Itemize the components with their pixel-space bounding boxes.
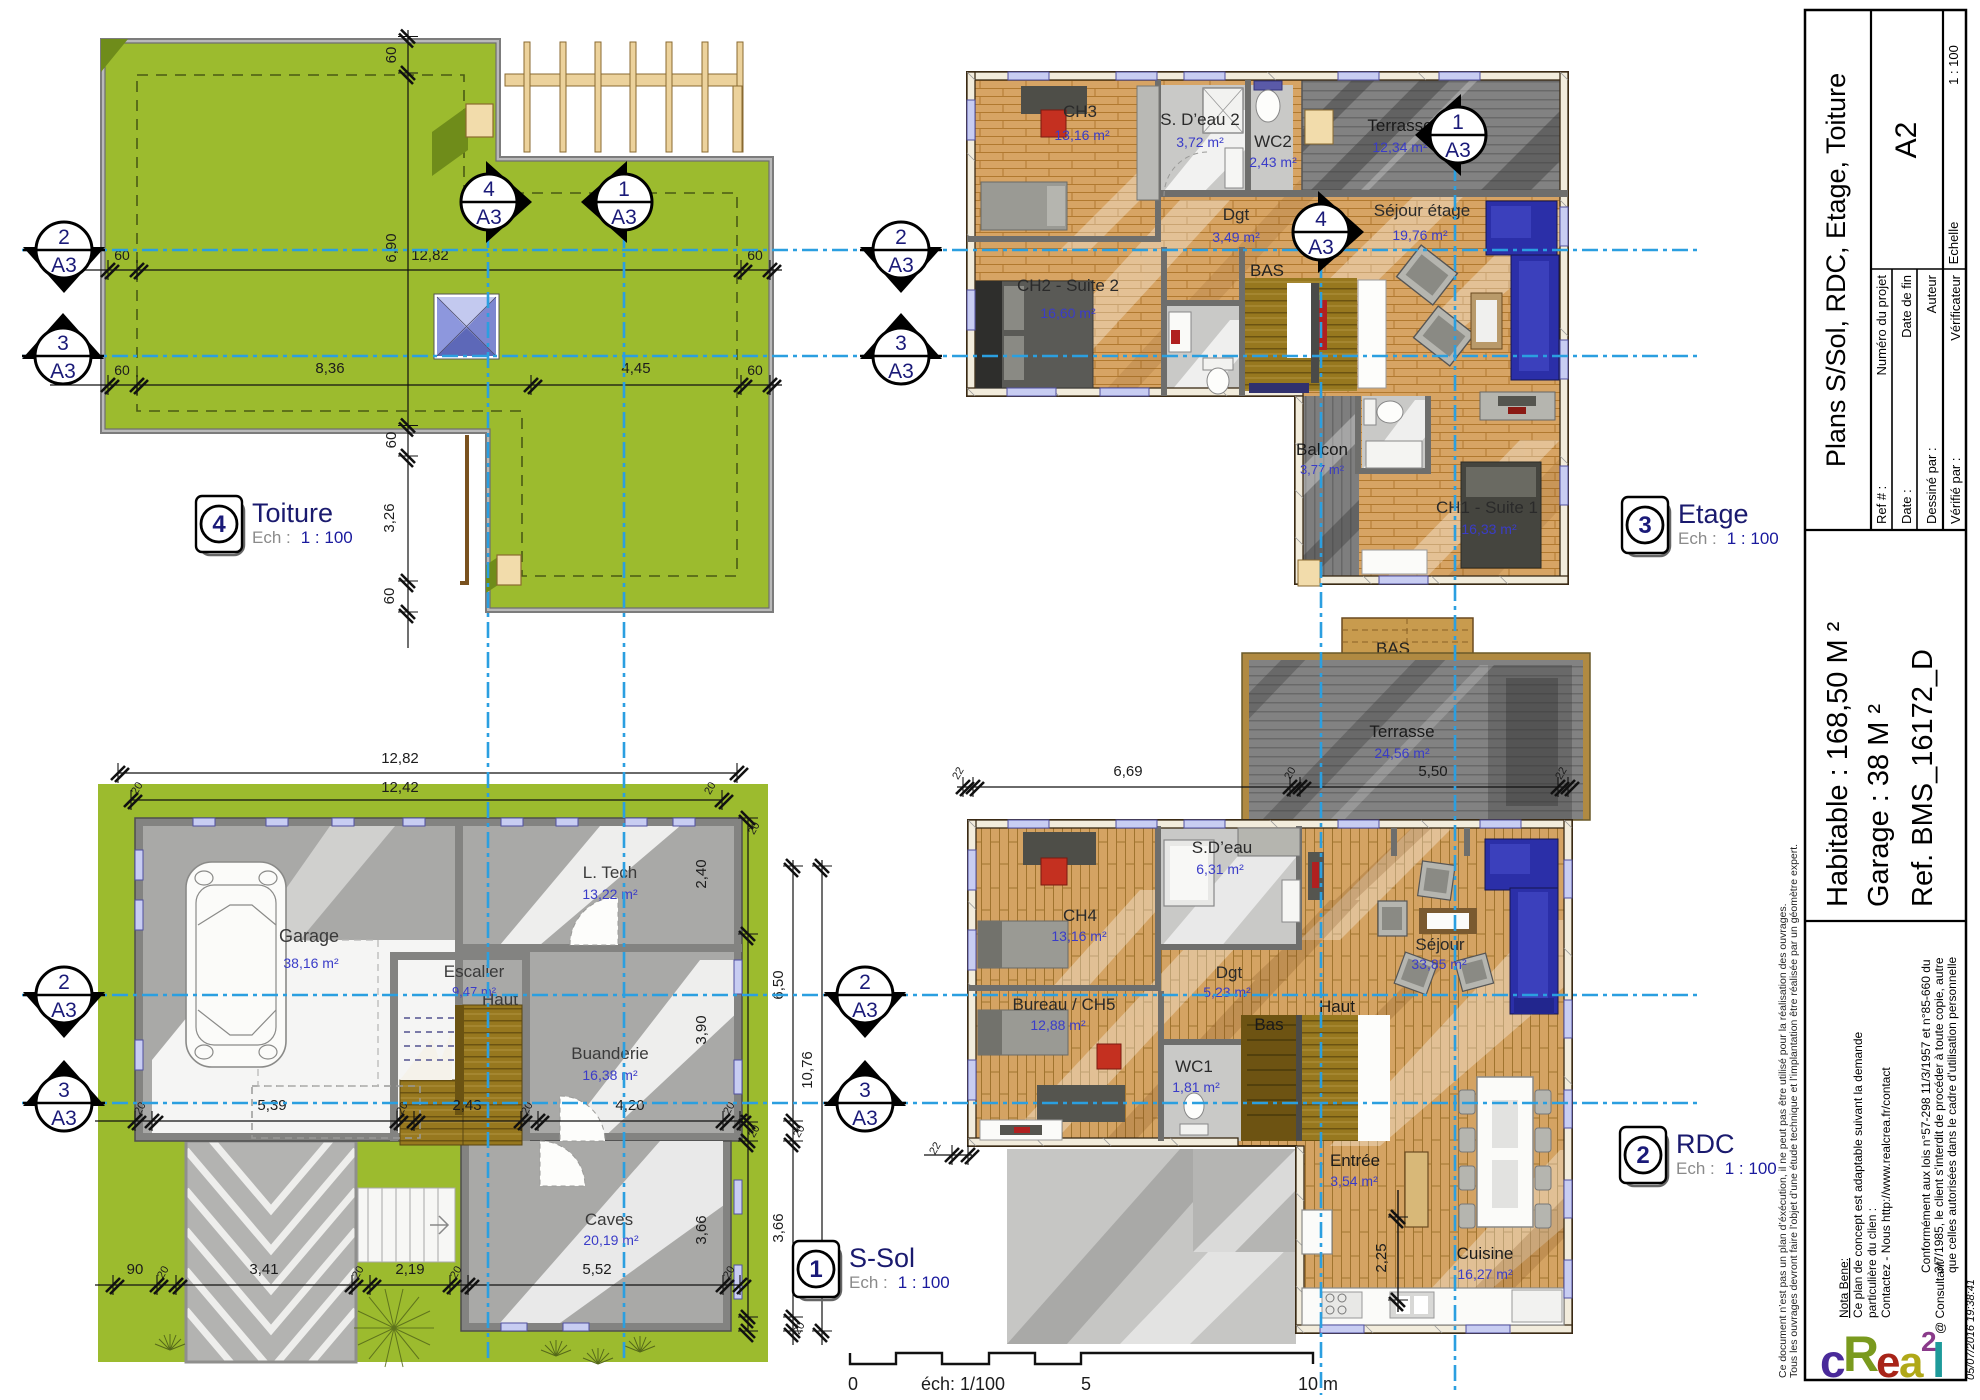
svg-text:Habitable : 168,50 M ²: Habitable : 168,50 M ² (1822, 621, 1854, 907)
svg-text:0: 0 (848, 1374, 858, 1394)
svg-text:1 : 100: 1 : 100 (1946, 45, 1961, 85)
svg-text:24,56 m²: 24,56 m² (1374, 745, 1430, 761)
svg-text:60: 60 (381, 588, 398, 605)
svg-text:4: 4 (483, 178, 495, 201)
svg-text:Date :: Date : (1899, 489, 1914, 524)
svg-text:5: 5 (1081, 1374, 1091, 1394)
svg-text:A3: A3 (51, 1107, 77, 1130)
svg-text:12,88 m²: 12,88 m² (1030, 1017, 1086, 1033)
svg-text:RDC: RDC (1676, 1129, 1735, 1159)
svg-text:3,49 m²: 3,49 m² (1212, 229, 1260, 245)
svg-text:S. D’eau 2: S. D’eau 2 (1160, 110, 1239, 129)
svg-text:3: 3 (1638, 512, 1651, 539)
svg-text:Toiture: Toiture (252, 498, 333, 528)
svg-text:A3: A3 (611, 206, 637, 229)
svg-text:12,82: 12,82 (381, 750, 419, 767)
svg-text:6,69: 6,69 (1113, 763, 1142, 780)
svg-text:éch: 1/100: éch: 1/100 (921, 1374, 1005, 1394)
svg-text:WC1: WC1 (1175, 1057, 1213, 1076)
svg-text:Nota Bene:: Nota Bene: (1837, 1258, 1851, 1318)
svg-text:2,25: 2,25 (1373, 1243, 1390, 1272)
svg-text:10,76: 10,76 (799, 1051, 816, 1089)
svg-text:Terrasse: Terrasse (1369, 722, 1434, 741)
svg-text:2,40: 2,40 (693, 859, 710, 888)
svg-text:13,16 m²: 13,16 m² (1051, 928, 1107, 944)
svg-text:Vérifié par :: Vérifié par : (1948, 458, 1963, 524)
svg-text:Date de fin: Date de fin (1899, 275, 1914, 338)
svg-text:A3: A3 (50, 360, 76, 383)
svg-text:3,90: 3,90 (693, 1015, 710, 1044)
svg-text:Ref. BMS_16172_D: Ref. BMS_16172_D (1907, 649, 1939, 907)
svg-text:Ech :1 : 100: Ech :1 : 100 (1676, 1159, 1777, 1178)
svg-text:05/07/2016 19:38:41: 05/07/2016 19:38:41 (1965, 1279, 1977, 1380)
svg-text:Buanderie: Buanderie (571, 1044, 649, 1063)
svg-text:4,20: 4,20 (615, 1097, 644, 1114)
svg-text:2,19: 2,19 (395, 1261, 424, 1278)
svg-text:3: 3 (859, 1079, 871, 1102)
svg-text:Entrée: Entrée (1330, 1151, 1380, 1170)
svg-text:60: 60 (747, 362, 763, 378)
svg-text:5,23 m²: 5,23 m² (1203, 984, 1251, 1000)
svg-text:3/7/1985, le client s’interdit: 3/7/1985, le client s’interdit de procéd… (1932, 957, 1946, 1273)
svg-text:Séjour: Séjour (1415, 935, 1464, 954)
svg-text:2,43 m²: 2,43 m² (1249, 154, 1297, 170)
svg-text:3,72 m²: 3,72 m² (1176, 134, 1224, 150)
svg-text:particulière du clien :: particulière du clien : (1865, 1208, 1879, 1318)
svg-text:5,50: 5,50 (1418, 763, 1447, 780)
svg-text:Escalier: Escalier (444, 962, 505, 981)
svg-text:16,27 m²: 16,27 m² (1457, 1266, 1513, 1282)
svg-text:2: 2 (895, 226, 907, 249)
svg-text:Bureau / CH5: Bureau / CH5 (1013, 995, 1116, 1014)
svg-text:@ Consultant: @ Consultant (1933, 1260, 1947, 1334)
svg-text:Etage: Etage (1678, 499, 1749, 529)
svg-text:1: 1 (618, 178, 630, 201)
svg-text:Plans S/Sol, RDC, Etage, Toitu: Plans S/Sol, RDC, Etage, Toiture (1821, 73, 1851, 467)
svg-text:4,45: 4,45 (621, 360, 650, 377)
svg-text:4: 4 (1315, 208, 1327, 231)
svg-text:A3: A3 (888, 360, 914, 383)
svg-text:Echelle: Echelle (1946, 222, 1961, 265)
svg-text:13,22 m²: 13,22 m² (582, 886, 638, 902)
svg-text:L. Tech: L. Tech (583, 863, 638, 882)
svg-text:3,66: 3,66 (770, 1213, 787, 1242)
svg-text:12,34 m²: 12,34 m² (1372, 139, 1428, 155)
svg-text:3: 3 (57, 332, 69, 355)
svg-text:1,81 m²: 1,81 m² (1172, 1079, 1220, 1095)
svg-text:3,54 m²: 3,54 m² (1330, 1173, 1378, 1189)
svg-text:Caves: Caves (585, 1210, 633, 1229)
svg-text:CH2 - Suite 2: CH2 - Suite 2 (1017, 276, 1119, 295)
svg-text:A2: A2 (1890, 122, 1923, 159)
svg-text:33,85 m²: 33,85 m² (1411, 956, 1467, 972)
svg-text:Ech :1 : 100: Ech :1 : 100 (252, 528, 353, 547)
svg-text:A3: A3 (1445, 139, 1471, 162)
svg-text:Haut: Haut (1319, 997, 1355, 1016)
svg-text:6,31 m²: 6,31 m² (1196, 861, 1244, 877)
svg-text:16,38 m²: 16,38 m² (582, 1067, 638, 1083)
svg-text:e: e (1876, 1338, 1900, 1387)
svg-text:12,42: 12,42 (381, 779, 419, 796)
svg-text:16,60 m²: 16,60 m² (1040, 305, 1096, 321)
svg-text:A3: A3 (51, 254, 77, 277)
svg-text:Ref # :: Ref # : (1874, 486, 1889, 524)
svg-text:19,76 m²: 19,76 m² (1392, 227, 1448, 243)
svg-text:R: R (1843, 1326, 1879, 1382)
svg-text:1: 1 (809, 1256, 822, 1283)
svg-text:3,26: 3,26 (381, 503, 398, 532)
svg-text:Garage: Garage (279, 926, 339, 946)
svg-text:l: l (1932, 1335, 1945, 1388)
svg-text:Vérificateur: Vérificateur (1948, 274, 1963, 340)
svg-text:Ce plan de concept est adaptab: Ce plan de concept est adaptable suivant… (1851, 1031, 1865, 1318)
svg-text:2: 2 (859, 971, 871, 994)
svg-text:BAS: BAS (1250, 261, 1284, 280)
svg-text:3,41: 3,41 (249, 1261, 278, 1278)
svg-text:A3: A3 (852, 1107, 878, 1130)
svg-text:Cuisine: Cuisine (1457, 1244, 1514, 1263)
svg-text:c: c (1820, 1335, 1846, 1387)
svg-text:que celles autorisées dans le: que celles autorisées dans le cadre d’ut… (1945, 956, 1959, 1273)
svg-text:S-Sol: S-Sol (849, 1243, 915, 1273)
svg-text:20,19 m²: 20,19 m² (583, 1232, 639, 1248)
svg-text:Conformément aux lois n°57-298: Conformément aux lois n°57-298 11/3/1957… (1919, 959, 1933, 1273)
svg-text:Bas: Bas (1254, 1015, 1283, 1034)
svg-text:A3: A3 (1308, 236, 1334, 259)
svg-text:60: 60 (383, 47, 400, 64)
svg-text:6,90: 6,90 (383, 233, 400, 262)
svg-text:Dgt: Dgt (1216, 963, 1243, 982)
svg-text:90: 90 (127, 1261, 144, 1278)
svg-text:60: 60 (114, 362, 130, 378)
svg-text:A3: A3 (476, 206, 502, 229)
svg-text:Garage : 38 M ²: Garage : 38 M ² (1863, 704, 1895, 907)
svg-text:5,39: 5,39 (257, 1097, 286, 1114)
svg-text:3: 3 (58, 1079, 70, 1102)
svg-text:CH3: CH3 (1063, 102, 1097, 121)
svg-text:A3: A3 (51, 999, 77, 1022)
svg-text:Auteur: Auteur (1924, 274, 1939, 313)
svg-text:Tous les ouvrages devront fair: Tous les ouvrages devront faire l’objet … (1788, 844, 1800, 1378)
svg-text:WC2: WC2 (1254, 132, 1292, 151)
svg-text:3,77 m²: 3,77 m² (1300, 462, 1345, 477)
svg-text:Dgt: Dgt (1223, 205, 1250, 224)
svg-text:Numéro du projet: Numéro du projet (1874, 275, 1889, 376)
svg-text:Contactez - Nous http://www.re: Contactez - Nous http://www.realcrea.fr/… (1879, 1067, 1893, 1318)
svg-text:Ech :1 : 100: Ech :1 : 100 (1678, 529, 1779, 548)
svg-text:2: 2 (1636, 1142, 1649, 1169)
svg-text:Ech :1 : 100: Ech :1 : 100 (849, 1273, 950, 1292)
svg-text:S.D’eau: S.D’eau (1192, 838, 1252, 857)
svg-text:10 m: 10 m (1298, 1374, 1338, 1394)
svg-text:A3: A3 (852, 999, 878, 1022)
svg-text:1: 1 (1452, 111, 1464, 134)
svg-text:CH4: CH4 (1063, 906, 1097, 925)
svg-text:2,43: 2,43 (452, 1097, 481, 1114)
svg-text:8,36: 8,36 (315, 360, 344, 377)
svg-text:3,66: 3,66 (693, 1215, 710, 1244)
svg-text:38,16 m²: 38,16 m² (283, 955, 339, 971)
svg-text:CH1 - Suite 1: CH1 - Suite 1 (1436, 498, 1538, 517)
svg-text:5,52: 5,52 (582, 1261, 611, 1278)
svg-text:2: 2 (58, 226, 70, 249)
svg-text:13,16 m²: 13,16 m² (1054, 127, 1110, 143)
svg-text:60: 60 (383, 432, 400, 449)
svg-text:Dessiné par :: Dessiné par : (1924, 447, 1939, 524)
svg-text:16,33 m²: 16,33 m² (1461, 521, 1517, 537)
svg-text:A3: A3 (888, 254, 914, 277)
svg-text:2: 2 (58, 971, 70, 994)
svg-text:4: 4 (212, 511, 226, 538)
svg-text:3: 3 (895, 332, 907, 355)
